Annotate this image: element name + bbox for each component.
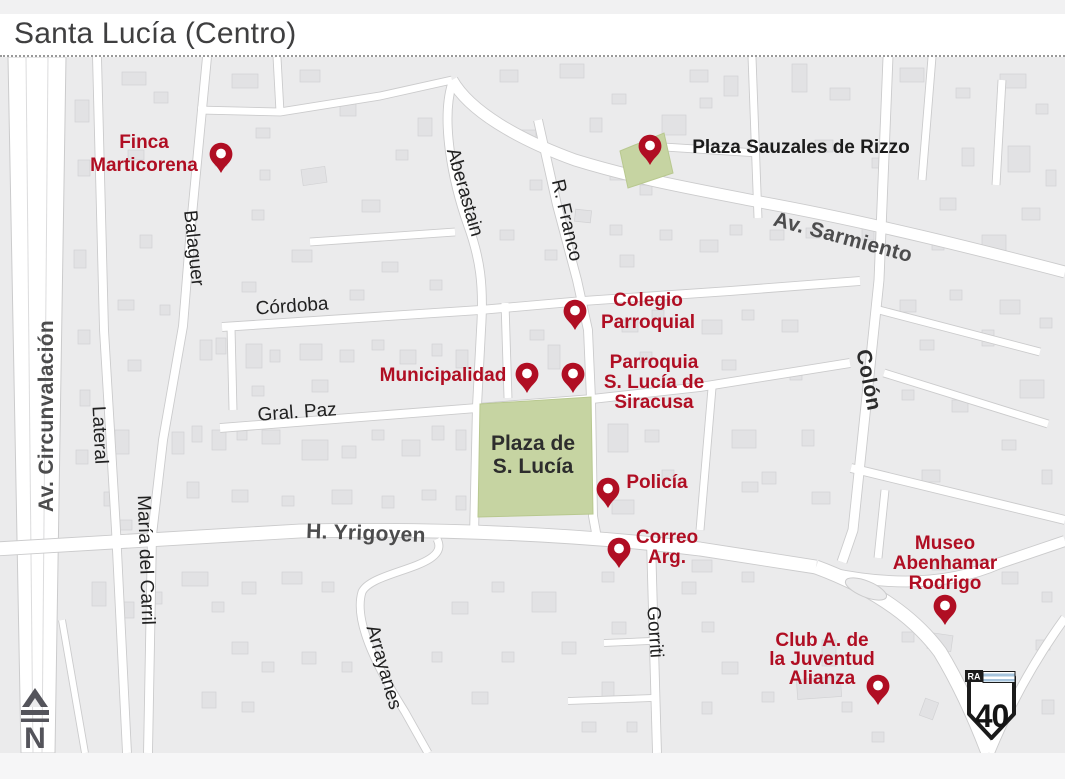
building-footprint bbox=[602, 572, 614, 582]
road-segment bbox=[277, 57, 280, 112]
map-pin-center bbox=[568, 369, 578, 379]
building-footprint bbox=[802, 430, 814, 446]
map-svg: Plaza de S. Lucía Av. CircunvalaciónLate… bbox=[0, 57, 1065, 753]
building-footprint bbox=[76, 450, 88, 464]
building-footprint bbox=[1002, 440, 1016, 450]
building-footprint bbox=[582, 722, 596, 732]
building-footprint bbox=[732, 430, 756, 448]
page-title: Santa Lucía (Centro) bbox=[14, 17, 296, 51]
poi-label-policia: Policía bbox=[626, 472, 688, 493]
map-pin-center bbox=[614, 544, 624, 554]
header: Santa Lucía (Centro) bbox=[0, 14, 1065, 57]
building-footprint bbox=[782, 320, 798, 332]
building-footprint bbox=[612, 94, 626, 104]
top-strip bbox=[0, 0, 1065, 14]
road-segment bbox=[604, 641, 650, 643]
building-footprint bbox=[430, 280, 442, 290]
building-footprint bbox=[502, 652, 514, 662]
building-footprint bbox=[660, 230, 672, 240]
building-footprint bbox=[872, 732, 884, 742]
building-footprint bbox=[270, 350, 280, 362]
building-footprint bbox=[548, 345, 560, 369]
building-footprint bbox=[645, 430, 659, 442]
building-footprint bbox=[920, 340, 934, 350]
map-pin-center bbox=[940, 601, 950, 611]
building-footprint bbox=[792, 64, 807, 92]
building-footprint bbox=[432, 426, 444, 440]
building-footprint bbox=[78, 330, 90, 344]
map-pin-center bbox=[522, 369, 532, 379]
poi-label-colegio-parroquial: ColegioParroquial bbox=[601, 290, 695, 333]
building-footprint bbox=[160, 305, 170, 315]
building-footprint bbox=[722, 662, 738, 674]
building-footprint bbox=[962, 148, 974, 166]
building-footprint bbox=[702, 320, 722, 334]
building-footprint bbox=[1040, 318, 1052, 328]
building-footprint bbox=[402, 440, 420, 456]
building-footprint bbox=[322, 582, 334, 592]
building-footprint bbox=[612, 500, 634, 514]
building-footprint bbox=[340, 350, 354, 362]
building-footprint bbox=[115, 430, 129, 454]
map-pin-center bbox=[873, 681, 883, 691]
building-footprint bbox=[80, 390, 90, 406]
building-footprint bbox=[662, 115, 686, 135]
building-footprint bbox=[560, 64, 584, 78]
building-footprint bbox=[342, 662, 352, 672]
building-footprint bbox=[456, 496, 466, 510]
building-footprint bbox=[830, 88, 850, 100]
building-footprint bbox=[382, 262, 398, 272]
shield-ra-label: RA bbox=[968, 672, 981, 682]
building-footprint bbox=[742, 310, 754, 320]
building-footprint bbox=[256, 128, 270, 138]
building-footprint bbox=[292, 250, 312, 262]
building-footprint bbox=[530, 180, 542, 190]
building-footprint bbox=[742, 572, 754, 582]
building-footprint bbox=[362, 200, 380, 212]
poi-label-parroquia-s-lucia: ParroquiaS. Lucía deSiracusa bbox=[604, 352, 704, 413]
building-footprint bbox=[202, 692, 216, 708]
building-footprint bbox=[312, 380, 328, 392]
building-footprint bbox=[456, 430, 466, 450]
building-footprint bbox=[702, 702, 712, 714]
street-label-av-circunvalacion: Av. Circunvalación bbox=[35, 320, 58, 512]
building-footprint bbox=[902, 632, 914, 642]
building-footprint bbox=[300, 344, 322, 360]
building-footprint bbox=[692, 560, 712, 572]
building-footprint bbox=[122, 72, 146, 85]
building-footprint bbox=[590, 118, 602, 132]
building-footprint bbox=[78, 160, 90, 176]
compass-n-label: N bbox=[24, 722, 46, 753]
building-footprint bbox=[700, 240, 718, 252]
building-footprint bbox=[500, 230, 514, 240]
building-footprint bbox=[1020, 380, 1044, 398]
building-footprint bbox=[702, 622, 714, 632]
map-pin-center bbox=[603, 484, 613, 494]
building-footprint bbox=[260, 170, 270, 180]
building-footprint bbox=[690, 70, 708, 82]
building-footprint bbox=[1022, 208, 1040, 220]
building-footprint bbox=[400, 350, 416, 364]
building-footprint bbox=[627, 722, 637, 732]
building-footprint bbox=[545, 250, 557, 260]
building-footprint bbox=[252, 210, 264, 220]
building-footprint bbox=[396, 150, 408, 160]
building-footprint bbox=[472, 692, 488, 704]
building-footprint bbox=[842, 702, 852, 712]
building-footprint bbox=[812, 492, 830, 504]
plaza-s-lucia-label-line1: Plaza de bbox=[491, 432, 575, 455]
building-footprint bbox=[922, 470, 940, 482]
footer-bar bbox=[0, 753, 1065, 779]
building-footprint bbox=[902, 390, 914, 400]
building-footprint bbox=[1002, 572, 1018, 584]
poi-label-municipalidad: Municipalidad bbox=[380, 365, 507, 386]
building-footprint bbox=[612, 622, 626, 634]
street-label-h-yrigoyen: H. Yrigoyen bbox=[306, 520, 426, 547]
building-footprint bbox=[372, 340, 384, 350]
building-footprint bbox=[212, 430, 226, 450]
building-footprint bbox=[350, 290, 364, 300]
building-footprint bbox=[956, 88, 970, 98]
building-footprint bbox=[172, 432, 184, 454]
street-label-gorriti: Gorriti bbox=[642, 606, 667, 659]
building-footprint bbox=[302, 652, 316, 664]
building-footprint bbox=[182, 572, 208, 586]
building-footprint bbox=[1036, 104, 1048, 114]
building-footprint bbox=[246, 344, 262, 368]
building-footprint bbox=[118, 300, 134, 310]
building-footprint bbox=[120, 520, 132, 530]
building-footprint bbox=[940, 198, 956, 210]
building-footprint bbox=[200, 340, 212, 360]
building-footprint bbox=[610, 225, 622, 235]
building-footprint bbox=[232, 490, 248, 502]
building-footprint bbox=[192, 426, 202, 442]
building-footprint bbox=[232, 642, 248, 654]
building-footprint bbox=[1042, 470, 1052, 484]
map-pin-center bbox=[216, 149, 226, 159]
building-footprint bbox=[262, 430, 280, 444]
building-footprint bbox=[700, 98, 712, 108]
building-footprint bbox=[532, 592, 556, 612]
building-footprint bbox=[432, 344, 442, 356]
building-footprint bbox=[92, 582, 106, 606]
building-footprint bbox=[342, 446, 356, 458]
street-label-lateral: Lateral bbox=[87, 406, 111, 465]
building-footprint bbox=[302, 440, 328, 460]
building-footprint bbox=[530, 330, 544, 340]
building-footprint bbox=[1046, 170, 1056, 186]
building-footprint bbox=[1042, 592, 1052, 602]
building-footprint bbox=[422, 490, 436, 500]
road-segment bbox=[231, 327, 233, 410]
building-footprint bbox=[252, 386, 264, 396]
building-footprint bbox=[950, 290, 962, 300]
building-footprint bbox=[282, 496, 294, 506]
building-footprint bbox=[640, 185, 652, 195]
building-footprint bbox=[242, 582, 256, 594]
building-footprint bbox=[900, 300, 916, 312]
road-segment bbox=[568, 698, 652, 701]
building-footprint bbox=[1008, 146, 1030, 172]
building-footprint bbox=[212, 602, 224, 612]
building-footprint bbox=[432, 652, 442, 662]
building-footprint bbox=[762, 692, 774, 702]
building-footprint bbox=[372, 430, 384, 440]
building-footprint bbox=[262, 662, 274, 672]
building-footprint bbox=[187, 482, 199, 498]
shield-number: 40 bbox=[975, 698, 1009, 734]
building-footprint bbox=[762, 472, 776, 484]
building-footprint bbox=[75, 100, 89, 122]
building-footprint bbox=[1042, 700, 1054, 714]
building-footprint bbox=[492, 582, 504, 592]
map-canvas: Plaza de S. Lucía Av. CircunvalaciónLate… bbox=[0, 57, 1065, 753]
building-footprint bbox=[722, 360, 736, 370]
building-footprint bbox=[608, 424, 628, 452]
building-footprint bbox=[418, 118, 432, 136]
building-footprint bbox=[382, 496, 394, 508]
building-footprint bbox=[900, 68, 924, 82]
building-footprint bbox=[216, 338, 226, 354]
building-footprint bbox=[140, 235, 152, 248]
building-footprint bbox=[301, 166, 327, 185]
plaza-s-lucia-label-line2: S. Lucía bbox=[493, 455, 574, 478]
building-footprint bbox=[332, 490, 352, 504]
building-footprint bbox=[620, 255, 634, 267]
building-footprint bbox=[452, 602, 468, 614]
building-footprint bbox=[128, 360, 141, 371]
map-pin-center bbox=[645, 141, 655, 151]
building-footprint bbox=[154, 92, 168, 103]
building-footprint bbox=[1000, 300, 1020, 314]
building-footprint bbox=[730, 225, 742, 235]
building-footprint bbox=[300, 70, 320, 82]
building-footprint bbox=[742, 482, 758, 492]
building-footprint bbox=[682, 582, 696, 594]
building-footprint bbox=[242, 282, 256, 292]
building-footprint bbox=[724, 76, 738, 96]
poi-label-plaza-sauzales: Plaza Sauzales de Rizzo bbox=[692, 137, 910, 158]
building-footprint bbox=[232, 74, 258, 88]
building-footprint bbox=[562, 642, 576, 654]
map-pin-center bbox=[570, 306, 580, 316]
building-footprint bbox=[242, 702, 254, 712]
building-footprint bbox=[74, 250, 86, 268]
building-footprint bbox=[282, 572, 302, 584]
building-footprint bbox=[500, 70, 518, 82]
